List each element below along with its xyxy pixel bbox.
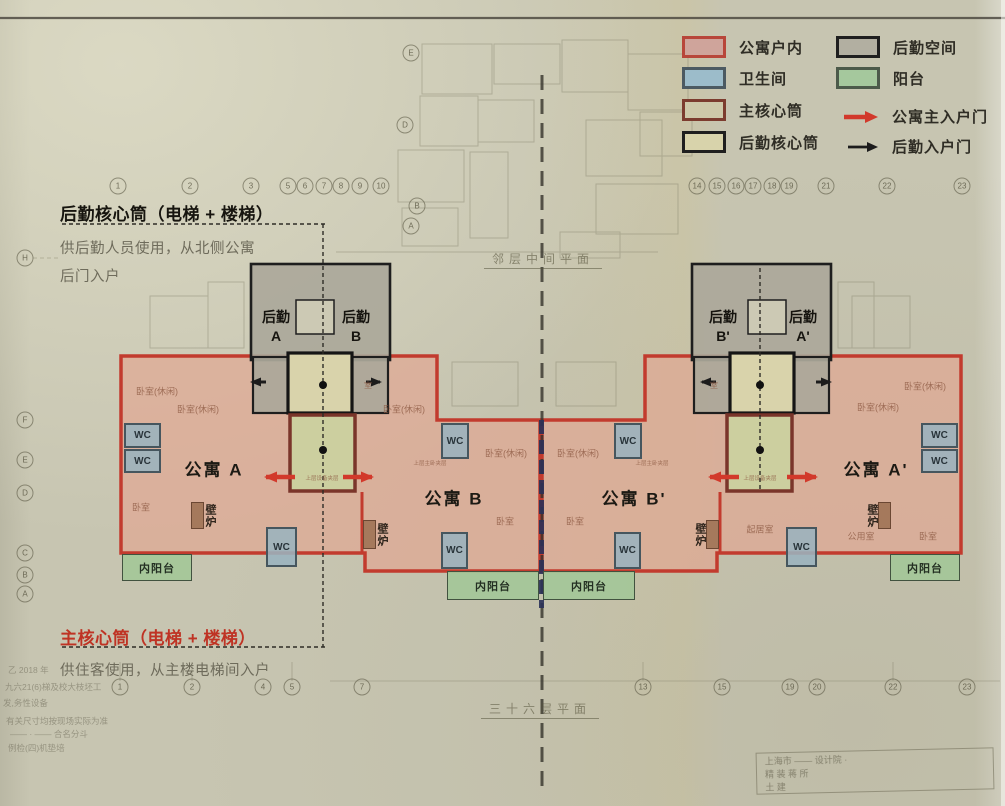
grid-bubble: 19 xyxy=(781,178,798,195)
legend-label: 卫生间 xyxy=(739,68,787,89)
grid-bubble: 1 xyxy=(110,178,127,195)
room-label: 上层设备夹层 xyxy=(743,474,776,482)
room-label: 卧室(休闲) xyxy=(383,403,425,416)
room-label: 起居室 xyxy=(746,523,773,536)
handwritten-note: 有关尺寸均按现场实际为准 xyxy=(6,715,108,727)
grid-bubble: B xyxy=(409,198,426,215)
legend-label: 主核心筒 xyxy=(739,100,803,121)
legend-label: 后勤入户门 xyxy=(892,136,972,157)
grid-bubble: 9 xyxy=(352,178,369,195)
wc-room: WC xyxy=(921,449,958,473)
grid-bubble: A xyxy=(403,218,420,235)
legend-item-main-core: 主核心筒 xyxy=(682,99,803,121)
annotation-service-core-title: 后勤核心筒（电梯 + 楼梯） xyxy=(60,200,273,225)
room-label: 卧室(休闲) xyxy=(904,380,946,393)
grid-bubble: 21 xyxy=(818,178,835,195)
room-label: 卧室(休闲) xyxy=(557,447,599,460)
room-label: 上层主卧夹层 xyxy=(635,459,668,467)
handwritten-note: —— · —— 合名分斗 xyxy=(10,728,88,740)
room-label: 卧室(休闲) xyxy=(857,401,899,414)
grid-bubble: 8 xyxy=(333,178,350,195)
grid-bubble: 7 xyxy=(316,178,333,195)
grid-bubble: 13 xyxy=(635,679,652,696)
grid-bubble: 1 xyxy=(112,679,129,696)
wc-room: WC xyxy=(786,527,817,567)
room-label: 室 xyxy=(363,381,374,389)
legend-item-apartment-interior: 公寓户内 xyxy=(682,36,803,58)
grid-bubble: 7 xyxy=(354,679,371,696)
grid-bubble: 17 xyxy=(745,178,762,195)
legend-swatch-main-core xyxy=(682,99,726,121)
legend-item-service-entry: 后勤入户门 xyxy=(847,136,972,157)
legend-item-bathroom: 卫生间 xyxy=(682,67,787,89)
fireplace-label: 壁炉 xyxy=(202,504,218,528)
service-area-label: 后勤A' xyxy=(789,308,817,346)
photo-edge xyxy=(1001,0,1005,806)
legend-label: 后勤空间 xyxy=(893,37,957,58)
inner-balcony: 内阳台 xyxy=(122,554,192,581)
handwritten-note: 发,务性设备 xyxy=(3,697,48,709)
service-area-label: 后勤A xyxy=(262,308,290,346)
annotation-service-core: 后勤核心筒（电梯 + 楼梯） 供后勤人员使用，从北侧公寓 后门入户 xyxy=(60,200,273,286)
inner-balcony: 内阳台 xyxy=(890,554,960,581)
legend-item-apartment-main-entry: 公寓主入户门 xyxy=(843,106,988,127)
legend-item-service-space: 后勤空间 xyxy=(836,36,957,58)
grid-bubble: F xyxy=(17,412,34,429)
apartment-label: 公寓 B' xyxy=(601,485,666,510)
room-label: 卧室(休闲) xyxy=(485,447,527,460)
room-label: 卧室 xyxy=(919,530,937,543)
wc-room: WC xyxy=(441,532,468,569)
grid-bubble: D xyxy=(397,117,414,134)
legend-swatch-service-core xyxy=(682,131,726,153)
fireplace-label: 壁炉 xyxy=(864,504,880,528)
handwritten-note: 九六21(6)梯及校大枝坯工 xyxy=(5,681,101,693)
annotation-main-core-line1: 供住客使用，从主楼电梯间入户 xyxy=(60,659,270,680)
grid-bubble: 15 xyxy=(709,178,726,195)
grid-bubble: 2 xyxy=(182,178,199,195)
room-label: 卧室 xyxy=(566,515,584,528)
legend-label: 后勤核心筒 xyxy=(739,132,819,153)
grid-bubble: 14 xyxy=(689,178,706,195)
legend-item-balcony: 阳台 xyxy=(836,67,925,89)
wc-room: WC xyxy=(614,532,641,569)
wc-room: WC xyxy=(614,423,642,459)
legend-label: 公寓户内 xyxy=(739,37,803,58)
handwritten-note: 乙 2018 年 xyxy=(8,664,49,676)
annotation-main-core-title: 主核心筒（电梯 + 楼梯） xyxy=(60,624,270,649)
grid-bubble: 22 xyxy=(879,178,896,195)
legend-swatch-apartment-interior xyxy=(682,36,726,58)
grid-bubble: 3 xyxy=(243,178,260,195)
room-label: 上层主卧夹层 xyxy=(413,459,446,467)
apartment-label: 公寓 A xyxy=(185,456,244,481)
grid-bubble: 23 xyxy=(959,679,976,696)
wc-room: WC xyxy=(266,527,297,567)
grid-bubble: 10 xyxy=(373,178,390,195)
room-label: 公用室 xyxy=(847,530,874,543)
apartment-label: 公寓 B xyxy=(425,485,484,510)
apartment-main-entry-arrow-icon xyxy=(843,109,879,125)
grid-bubble: 6 xyxy=(297,178,314,195)
service-entry-arrow-icon xyxy=(847,139,879,155)
grid-bubble: 5 xyxy=(280,178,297,195)
inner-balcony: 内阳台 xyxy=(543,571,635,600)
grid-bubble: B xyxy=(17,567,34,584)
wc-room: WC xyxy=(124,449,161,473)
grid-bubble: 15 xyxy=(714,679,731,696)
legend-label: 阳台 xyxy=(893,68,925,89)
annotation-service-core-line1: 供后勤人员使用，从北侧公寓 xyxy=(60,237,273,258)
grid-bubble: 2 xyxy=(184,679,201,696)
apartment-label: 公寓 A' xyxy=(843,456,908,481)
annotation-service-core-line2: 后门入户 xyxy=(60,265,273,286)
room-label: 上层设备夹层 xyxy=(305,474,338,482)
grid-bubble: 5 xyxy=(284,679,301,696)
lower-drawing-title: 三十六层平面 xyxy=(481,700,599,719)
legend-swatch-bathroom xyxy=(682,67,726,89)
legend-label: 公寓主入户门 xyxy=(892,106,988,127)
annotation-main-core: 主核心筒（电梯 + 楼梯） 供住客使用，从主楼电梯间入户 xyxy=(60,624,270,680)
grid-bubble: A xyxy=(17,586,34,603)
legend-item-service-core: 后勤核心筒 xyxy=(682,131,819,153)
legend-swatch-service-space xyxy=(836,36,880,58)
legend-swatch-balcony xyxy=(836,67,880,89)
grid-bubble: E xyxy=(17,452,34,469)
handwritten-note: 例检(四)机垫培 xyxy=(8,742,65,754)
room-label: 卧室(休闲) xyxy=(177,403,219,416)
upper-drawing-title: 邻层中间平面 xyxy=(484,250,602,269)
service-area-label: 后勤B' xyxy=(709,308,737,346)
grid-bubble: 4 xyxy=(255,679,272,696)
sheet-title-block: 上海市 —— 设计院 ·精 装 蒋 所土 建 xyxy=(756,747,995,794)
room-label: 卧室(休闲) xyxy=(136,385,178,398)
wc-room: WC xyxy=(921,423,958,448)
grid-bubble: 23 xyxy=(954,178,971,195)
grid-bubble: 16 xyxy=(728,178,745,195)
grid-bubble: C xyxy=(17,545,34,562)
grid-bubble: D xyxy=(17,485,34,502)
grid-bubble: 19 xyxy=(782,679,799,696)
grid-bubble: 20 xyxy=(809,679,826,696)
grid-bubble: E xyxy=(403,45,420,62)
room-label: 卧室 xyxy=(496,515,514,528)
floorplan-page: 后勤核心筒（电梯 + 楼梯） 供后勤人员使用，从北侧公寓 后门入户 主核心筒（电… xyxy=(0,0,1005,806)
grid-bubble: 22 xyxy=(885,679,902,696)
wc-room: WC xyxy=(441,423,469,459)
room-label: 室 xyxy=(709,381,720,389)
service-area-label: 后勤B xyxy=(342,308,370,346)
inner-balcony: 内阳台 xyxy=(447,571,539,600)
fireplace-label: 壁炉 xyxy=(374,523,390,547)
wc-room: WC xyxy=(124,423,161,448)
grid-bubble: H xyxy=(17,250,34,267)
fireplace-label: 壁炉 xyxy=(692,523,708,547)
room-label: 卧室 xyxy=(132,501,150,514)
grid-bubble: 18 xyxy=(764,178,781,195)
